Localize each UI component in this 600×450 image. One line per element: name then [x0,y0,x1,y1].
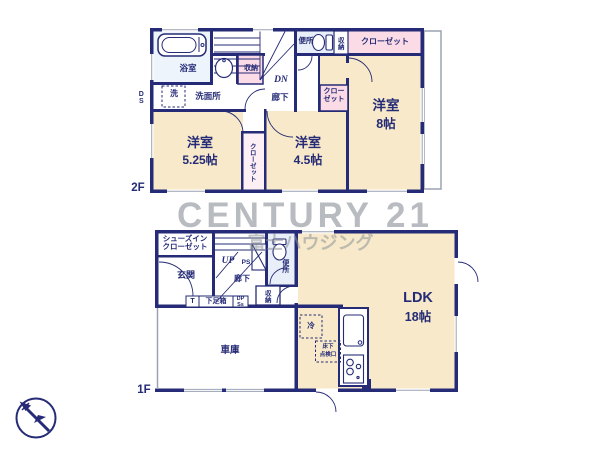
bath-label: 浴室 [168,64,208,74]
toilet-1f-label: 便所 [281,252,289,280]
stove-icon [344,355,364,383]
hallway-1f-label: 廊下 [226,275,258,284]
room-center-name: 洋室 [284,136,332,151]
kitchen-counter [339,308,368,386]
pipe-space-label: PS [238,259,254,266]
garage-label: 車庫 [206,346,254,357]
room-west-size: 5.25帖 [170,154,230,167]
shoe-ss-label: Ss [233,302,248,308]
compass-icon [17,399,56,438]
entrance-label: 玄関 [166,270,206,280]
ldk-size: 18帖 [396,310,440,324]
room-west-name: 洋室 [176,136,224,151]
kitchen-sink-icon [344,315,364,346]
toilet-storage-label: 収納 [336,34,343,52]
shoe-t-label: T [186,298,199,306]
floorplan-page: CENTURY 21 富士ハウジング 2F DS 浴室 洗 洗面所 収納 DN … [0,0,600,450]
floor2-label: 2F [127,182,149,195]
duct-space-label: DS [137,86,145,110]
storage-1f-label: 収納 [263,288,270,304]
bathtub-icon [158,34,206,56]
stairs-dn-label: DN [268,75,294,86]
closet-top-label: クローゼット [350,38,420,47]
shoe-box-label: 下足箱 [199,298,233,306]
storage-hall-label: 収納 [239,65,263,73]
stairs-up-label: UP [216,256,240,267]
fridge-label: 冷 [304,322,318,330]
floor1-label: 1F [133,384,155,397]
room-east-name: 洋室 [362,98,410,113]
washbasin-icon [216,59,233,78]
floorplan-linework [0,0,600,450]
room-center-size: 4.5帖 [284,154,332,167]
balcony [424,31,441,189]
toilet-2f-label: 便所 [295,37,317,45]
ldk-name: LDK [392,290,444,306]
washroom-label: 洗面所 [184,92,232,102]
closet-small-label: クローゼット [322,88,346,104]
room-east-size: 8帖 [368,117,404,131]
closet-mid-label: クローゼット [248,137,255,187]
pipe-space-box [252,244,266,270]
laundry-label: 洗 [164,90,184,99]
shoes-closet-label: シューズインクローゼット [160,235,210,252]
floor-hatch-line1: 床下 [318,344,338,350]
hallway-2f-label: 廊下 [264,93,296,103]
floor-hatch-line2: 点検口 [316,352,340,358]
